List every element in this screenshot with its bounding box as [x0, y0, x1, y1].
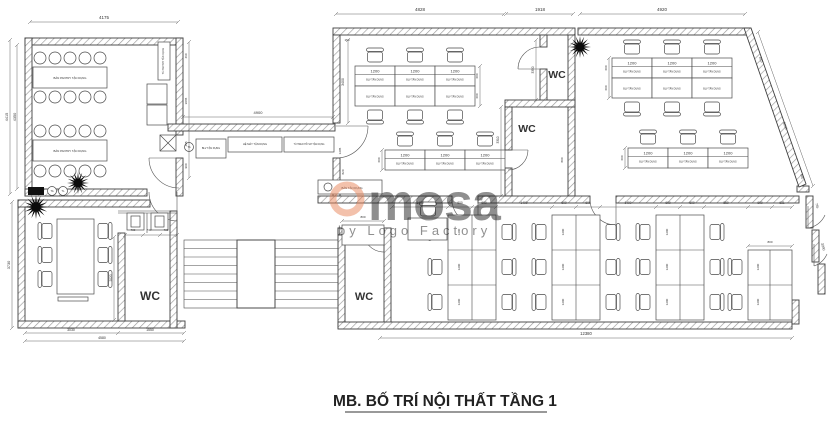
chair: [428, 259, 442, 276]
chair-part: [636, 259, 640, 276]
chair-part: [664, 40, 681, 44]
label: WC: [518, 123, 536, 135]
chair-part: [617, 259, 621, 276]
label: 1200: [451, 69, 461, 74]
chair-part: [502, 225, 512, 240]
chair-part: [432, 295, 442, 310]
label: 600: [475, 73, 479, 78]
label: 600: [689, 201, 695, 205]
chair-part: [408, 52, 423, 62]
chair-round: [34, 125, 46, 137]
label: 600: [604, 85, 608, 90]
chair-part: [398, 136, 413, 146]
wall: [25, 38, 32, 196]
label: 1200: [561, 263, 565, 270]
chair: [447, 48, 464, 62]
label: 3730: [7, 261, 11, 269]
label: 4828: [415, 7, 426, 12]
chair: [704, 40, 721, 54]
chair-part: [606, 295, 616, 310]
label: BLV TẬN DỤNG: [446, 79, 464, 82]
label: 4175: [99, 15, 110, 20]
wall: [505, 168, 512, 196]
chair-part: [710, 225, 720, 240]
chair-part: [625, 102, 640, 112]
drawing-title: MB. BỐ TRÍ NỘI THẤT TẦNG 1: [333, 392, 557, 410]
chair-part: [624, 113, 641, 117]
label: 1200: [371, 69, 381, 74]
plant-icon: [67, 172, 89, 194]
chair-part: [532, 224, 536, 241]
label: 1200: [756, 263, 760, 270]
dim-tick: [811, 184, 815, 188]
label: 4900: [254, 110, 264, 115]
chair-part: [536, 295, 546, 310]
chair: [367, 48, 384, 62]
chair: [728, 259, 742, 276]
chair-part: [397, 132, 414, 136]
chair-part: [721, 134, 736, 144]
wall: [806, 196, 813, 228]
label: 600: [585, 201, 591, 205]
chair-part: [536, 225, 546, 240]
label: 730: [147, 228, 152, 232]
chair: [606, 224, 620, 241]
chair-part: [640, 130, 657, 134]
chair-part: [448, 52, 463, 62]
chair-part: [732, 295, 742, 310]
chair-part: [502, 295, 512, 310]
chair-round: [49, 52, 61, 64]
door-arc: [518, 47, 540, 69]
chair: [624, 40, 641, 54]
chair: [38, 271, 52, 288]
chair-part: [705, 44, 720, 54]
label: 1205: [338, 147, 342, 154]
chair-part: [665, 102, 680, 112]
chair-round: [64, 52, 76, 64]
label: BLV TẬN DỤNG: [406, 96, 424, 99]
label: BLV TẬN DỤNG: [663, 88, 681, 91]
label: 600: [377, 157, 381, 162]
label: 1200: [411, 69, 421, 74]
door-arc: [149, 158, 179, 188]
wall: [176, 38, 183, 135]
label: 900: [184, 163, 188, 168]
chair-part: [42, 248, 52, 263]
chair-part: [42, 272, 52, 287]
chair-part: [606, 260, 616, 275]
label: 700: [164, 228, 169, 232]
label: 600: [475, 93, 479, 98]
chair-part: [367, 121, 384, 125]
chair-part: [680, 130, 697, 134]
label: WC: [140, 289, 160, 303]
label: BLV TẬN DỤNG: [719, 161, 737, 164]
chair-part: [408, 110, 423, 120]
chair-part: [532, 294, 536, 311]
wall-slanted: [744, 28, 806, 187]
chair: [710, 294, 724, 311]
chair: [636, 224, 650, 241]
wall: [168, 124, 335, 131]
chair-round: [94, 52, 106, 64]
chair: [447, 110, 464, 124]
meeting-table: [57, 219, 94, 294]
label: 800: [360, 215, 365, 219]
chair: [728, 294, 742, 311]
label: TỦ TREO HỒ SƠ TẬN DỤNG: [294, 143, 325, 146]
label: TỦ PANTRY TẬN DỤNG: [162, 48, 165, 75]
label: 4350: [13, 113, 17, 121]
chair: [98, 223, 112, 240]
chair: [532, 294, 546, 311]
label: 4580: [98, 336, 106, 340]
wall: [170, 211, 177, 328]
counter-block: [28, 187, 44, 195]
chair-part: [477, 132, 494, 136]
wall: [384, 228, 391, 328]
label: BÀN PANTRY TẬN DỤNG: [54, 148, 87, 153]
chair-part: [536, 260, 546, 275]
chair: [664, 40, 681, 54]
door-arc: [508, 150, 528, 170]
label: BLV TẬN DỤNG: [366, 79, 384, 82]
wall: [540, 35, 547, 47]
chair-part: [98, 272, 108, 287]
label: 600: [604, 65, 608, 70]
label: 600: [561, 201, 567, 205]
wall: [818, 264, 825, 294]
appliance: [147, 105, 167, 125]
label: 1200: [665, 263, 669, 270]
chair: [367, 110, 384, 124]
chair-part: [98, 224, 108, 239]
chair-part: [665, 44, 680, 54]
label: 1200: [724, 151, 734, 156]
bench-icon: [324, 183, 332, 191]
chair: [636, 259, 650, 276]
chair-part: [640, 295, 650, 310]
label: 4415: [5, 113, 9, 121]
label: WC: [355, 291, 373, 303]
chair-round: [79, 52, 91, 64]
wall: [540, 69, 547, 103]
chair-part: [513, 224, 517, 241]
label: 3030: [67, 328, 75, 332]
chair-part: [721, 294, 725, 311]
chair: [680, 130, 697, 144]
chair-part: [705, 102, 720, 112]
label: 820: [341, 169, 345, 174]
chair-part: [617, 224, 621, 241]
chair: [532, 224, 546, 241]
plant-icon: [569, 36, 591, 58]
chair-round: [49, 125, 61, 137]
label: 700: [131, 228, 136, 232]
chair-part: [728, 259, 732, 276]
chair: [710, 224, 724, 241]
wc-fixture: [131, 216, 140, 227]
chair-round: [64, 91, 76, 103]
chair-part: [721, 259, 725, 276]
label: 1200: [628, 61, 638, 66]
label: BLV TẬN DỤNG: [623, 88, 641, 91]
label: 800: [767, 240, 772, 244]
wall: [505, 107, 512, 150]
chair-part: [710, 260, 720, 275]
chair-part: [640, 225, 650, 240]
chair-part: [109, 247, 113, 264]
label: 1200: [561, 228, 565, 235]
chair: [664, 102, 681, 116]
chair: [407, 48, 424, 62]
label: 1200: [668, 61, 678, 66]
chair-part: [407, 48, 424, 52]
chair-part: [617, 294, 621, 311]
wall: [616, 196, 799, 203]
chair: [720, 130, 737, 144]
label: 1200: [644, 151, 654, 156]
label: BLV TẬN DỤNG: [703, 71, 721, 74]
label: 3090: [820, 242, 826, 251]
chair: [502, 224, 516, 241]
wall: [792, 300, 799, 324]
wall: [118, 233, 125, 321]
chair-part: [636, 224, 640, 241]
chair: [38, 247, 52, 264]
chair: [38, 223, 52, 240]
chair-part: [432, 260, 442, 275]
chair-part: [641, 134, 656, 144]
title-block: MB. BỐ TRÍ NỘI THẤT TẦNG 1: [333, 392, 557, 412]
chair-round: [64, 125, 76, 137]
label: BLV TẬN DỤNG: [446, 96, 464, 99]
chair-part: [704, 113, 721, 117]
bench: [58, 297, 88, 301]
chair-part: [368, 110, 383, 120]
chair-part: [428, 259, 432, 276]
chair-part: [636, 294, 640, 311]
label: 735: [814, 202, 820, 209]
wall: [176, 158, 183, 196]
chair-round: [79, 125, 91, 137]
chair: [477, 132, 494, 146]
chair: [636, 294, 650, 311]
label: 1550: [146, 328, 154, 332]
label: BLV TẬN DỤNG: [436, 163, 454, 166]
plant-icon: [24, 195, 48, 219]
label: 12380: [580, 331, 592, 336]
label: TA: [50, 189, 53, 193]
chair-part: [732, 260, 742, 275]
chair-part: [664, 113, 681, 117]
label: 4920: [657, 7, 668, 12]
label: BLV TẬN DỤNG: [476, 163, 494, 166]
chair-part: [710, 295, 720, 310]
label: 1200: [756, 298, 760, 305]
label: 3400: [341, 78, 345, 86]
chair-part: [532, 259, 536, 276]
dim-tick: [756, 30, 760, 34]
chair: [502, 294, 516, 311]
chair-round: [34, 91, 46, 103]
stair-landing: [237, 240, 275, 308]
chair: [606, 294, 620, 311]
chair-part: [513, 294, 517, 311]
chair-part: [367, 48, 384, 52]
watermark-byline: by Logo Factory: [338, 223, 491, 238]
label: 1200: [457, 298, 461, 305]
label: BLV TẬN DỤNG: [679, 161, 697, 164]
label: 850: [723, 201, 729, 205]
label: 1200: [457, 263, 461, 270]
label: 2020: [109, 274, 113, 281]
chair-round: [79, 91, 91, 103]
wall: [578, 28, 748, 35]
chair: [624, 102, 641, 116]
chair: [407, 110, 424, 124]
label: 3350: [531, 66, 535, 73]
chair-part: [368, 52, 383, 62]
chair-part: [38, 247, 42, 264]
label: BLV TẬN DỤNG: [366, 96, 384, 99]
chair-round: [49, 91, 61, 103]
chair-part: [438, 136, 453, 146]
chair-part: [606, 225, 616, 240]
label: 631: [779, 201, 785, 205]
label: 1200: [481, 153, 491, 158]
label: 150: [344, 38, 349, 42]
label: BLV TẬN DỤNG: [396, 163, 414, 166]
label: 1200: [665, 298, 669, 305]
label: 800: [560, 157, 564, 162]
wall: [568, 35, 575, 196]
chair: [640, 130, 657, 144]
chair-part: [728, 294, 732, 311]
label: BLV TẬN DỤNG: [623, 71, 641, 74]
chair: [532, 259, 546, 276]
chair: [437, 132, 454, 146]
chair-part: [478, 136, 493, 146]
wall: [333, 28, 575, 35]
chair: [397, 132, 414, 146]
wall: [333, 35, 340, 123]
chair-round: [94, 165, 106, 177]
chair-round: [79, 165, 91, 177]
wall: [338, 322, 792, 329]
wall: [505, 100, 575, 107]
label: 1400: [624, 201, 631, 205]
label: BLV TẬN DỤNG: [703, 88, 721, 91]
label: BLV TẬN DỤNG: [639, 161, 657, 164]
label: 1200: [401, 153, 411, 158]
wall: [18, 200, 25, 328]
chair: [502, 259, 516, 276]
label: BLV TẬN DỤNG: [406, 79, 424, 82]
label: 1200: [665, 228, 669, 235]
chair: [704, 102, 721, 116]
chair: [606, 259, 620, 276]
chair-round: [34, 52, 46, 64]
label: 1200: [708, 61, 718, 66]
chair-part: [447, 121, 464, 125]
label: BÀN PANTRY TẬN DỤNG: [54, 75, 87, 80]
chair: [98, 247, 112, 264]
floor-plan-page: 1200BLV TẬN DỤNG1200BLV TẬN DỤNG1200BLV …: [0, 0, 828, 429]
wall: [18, 321, 185, 328]
chair-part: [98, 248, 108, 263]
label: 1200: [684, 151, 694, 156]
label: 465: [184, 141, 188, 146]
chair-part: [447, 48, 464, 52]
chair-part: [109, 223, 113, 240]
wc-fixture: [155, 216, 164, 227]
chair-round: [34, 165, 46, 177]
chair-round: [64, 165, 76, 177]
label: 3065: [184, 97, 188, 104]
chair-part: [681, 134, 696, 144]
label: 1918: [535, 7, 546, 12]
chair-round: [94, 125, 106, 137]
chair-part: [513, 259, 517, 276]
chair-part: [437, 132, 454, 136]
chair-part: [720, 130, 737, 134]
chair-part: [640, 260, 650, 275]
label: 600: [665, 201, 671, 205]
chair: [710, 259, 724, 276]
chair-part: [502, 260, 512, 275]
chair-part: [428, 294, 432, 311]
chair-round: [49, 165, 61, 177]
label: 1200: [561, 298, 565, 305]
chair: [428, 294, 442, 311]
floor-plan-canvas: 1200BLV TẬN DỤNG1200BLV TẬN DỤNG1200BLV …: [0, 0, 828, 429]
label: 1400: [520, 201, 527, 205]
label: BLV TẬN DỤNG: [202, 147, 220, 150]
chair-part: [721, 224, 725, 241]
label: 600: [620, 155, 624, 160]
label: 1200: [441, 153, 451, 158]
chair-part: [407, 121, 424, 125]
chair-part: [624, 40, 641, 44]
label: 3310: [496, 136, 500, 143]
chair-part: [42, 224, 52, 239]
chair-part: [625, 44, 640, 54]
chair-part: [38, 271, 42, 288]
dim-line: [758, 32, 813, 186]
label: 460: [184, 53, 188, 58]
chair-part: [704, 40, 721, 44]
label: BLV TẬN DỤNG: [663, 71, 681, 74]
label: 600: [757, 201, 763, 205]
stairs-layer: [184, 240, 338, 308]
label: WC: [548, 69, 566, 81]
chair-round: [94, 91, 106, 103]
wall: [812, 230, 819, 262]
chair-part: [448, 110, 463, 120]
appliance: [147, 84, 167, 104]
chair-part: [38, 223, 42, 240]
